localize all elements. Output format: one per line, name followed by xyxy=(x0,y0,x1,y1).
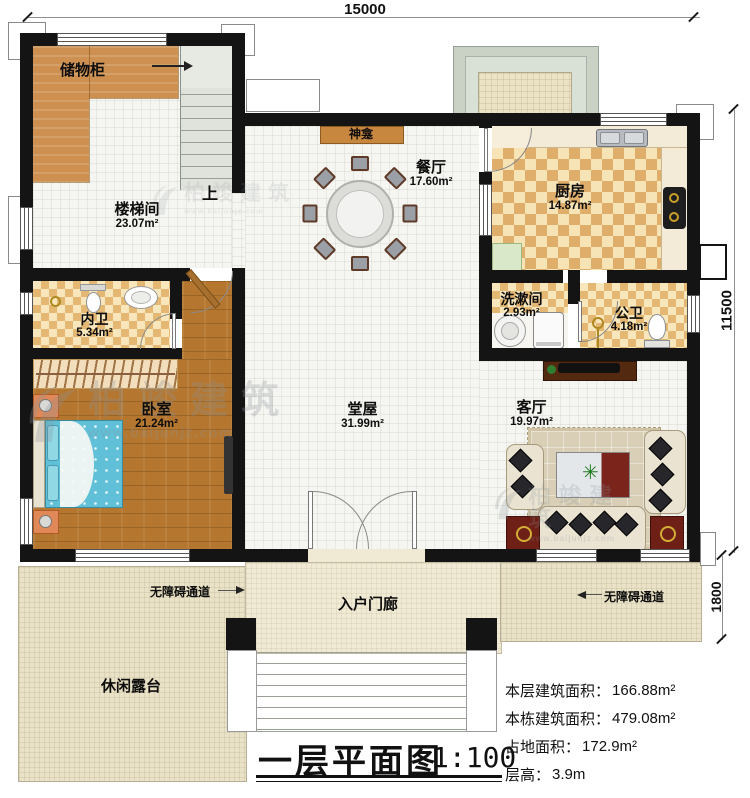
label-porch: 入户门廊 xyxy=(313,596,423,613)
wall-washroom-top-b xyxy=(607,270,700,283)
terrace-area xyxy=(18,566,247,782)
window-living-bottom-1 xyxy=(536,549,597,562)
label-public-bath: 公卫4.18m² xyxy=(594,305,664,334)
wall-top-mid xyxy=(232,113,600,126)
dim-right-label: 11500 xyxy=(719,281,736,341)
label-hall: 堂屋31.99m² xyxy=(320,401,405,431)
dim-porch-label: 1800 xyxy=(708,572,724,622)
label-bedroom: 卧室21.24m² xyxy=(114,401,199,431)
porch-column-base-right xyxy=(466,650,497,732)
private-toilet-bowl xyxy=(86,292,101,313)
stove-burner-1 xyxy=(669,193,679,203)
bedroom-tv xyxy=(224,436,233,494)
window-kitchen-top xyxy=(600,113,667,126)
wall-bath-bottom xyxy=(20,348,182,359)
label-kitchen: 厨房14.87m² xyxy=(530,183,610,213)
wall-bottom-4 xyxy=(597,549,640,562)
porch-column-left xyxy=(226,618,256,650)
porch-column-right xyxy=(466,618,497,650)
wall-bottom-5 xyxy=(690,549,700,562)
stair-opening-floor xyxy=(232,193,245,268)
wardrobe-rail xyxy=(36,373,175,375)
washing-machine-panel xyxy=(536,342,561,346)
window-bedroom-left xyxy=(20,498,33,545)
nightstand-lamp-bottom xyxy=(39,515,52,528)
porch-threshold xyxy=(308,549,425,562)
floor-plan: ✳ 储物柜 楼梯间23.07m² 神龛 餐厅17.60m² 厨房14.87m² … xyxy=(0,0,750,798)
stair-up-arrowhead xyxy=(184,61,193,71)
public-toilet-tank xyxy=(644,340,670,348)
window-stairwell-left xyxy=(20,207,33,250)
sill-dining-top xyxy=(246,79,320,112)
label-washroom: 洗漱间2.93m² xyxy=(479,291,564,320)
tv-plant xyxy=(547,365,556,374)
bay-structure-inner xyxy=(478,72,572,116)
label-terrace: 休闲露台 xyxy=(91,678,171,695)
porch-column-base-left xyxy=(227,650,257,732)
wall-bath-top xyxy=(20,268,190,281)
label-up: 上 xyxy=(202,180,218,204)
entry-door-leaf-right xyxy=(412,491,417,549)
accessible-right-arrow xyxy=(577,591,586,599)
wall-washroom-divider xyxy=(568,270,580,304)
dining-chair xyxy=(351,256,369,271)
title-underline-thin xyxy=(256,781,502,782)
private-toilet-tank xyxy=(80,284,106,291)
stat-height: 层高：3.9m xyxy=(505,760,675,788)
wall-hall-bedroom xyxy=(232,268,245,562)
dining-chair xyxy=(351,156,369,171)
kitchen-sink-bowl-left xyxy=(600,132,620,144)
label-dining: 餐厅17.60m² xyxy=(386,159,476,189)
window-bedroom-bottom xyxy=(75,549,190,562)
wall-washroom-bottom xyxy=(479,348,700,361)
wall-kitchen-a xyxy=(479,113,492,128)
label-stairwell: 楼梯间23.07m² xyxy=(92,201,182,231)
tv xyxy=(558,363,620,373)
wall-washroom-top-a xyxy=(479,270,563,283)
wall-bottom-3 xyxy=(425,549,536,562)
wall-bottom-1 xyxy=(20,549,75,562)
label-storage: 储物柜 xyxy=(40,62,125,79)
window-publicbath-right xyxy=(687,295,700,333)
end-table-right xyxy=(650,516,684,550)
bed-pillow-2 xyxy=(47,465,59,501)
bed-pillow-1 xyxy=(47,425,59,461)
coffee-table-plant: ✳ xyxy=(582,460,599,485)
label-shrine: 神龛 xyxy=(320,128,402,142)
label-private-bath: 内卫5.34m² xyxy=(57,311,132,340)
stove-burner-2 xyxy=(669,212,679,222)
wall-right-2 xyxy=(687,333,700,562)
public-bath-door-leaf xyxy=(578,301,582,342)
washroom-basin-inner xyxy=(501,322,519,340)
dining-table-inner xyxy=(336,190,384,238)
window-top-left xyxy=(57,33,167,46)
flue-box xyxy=(699,244,727,280)
label-living: 客厅19.97m² xyxy=(489,399,574,429)
label-accessible-right: 无障碍通道 xyxy=(604,588,664,605)
shower-drain xyxy=(50,296,61,307)
label-accessible-left: 无障碍通道 xyxy=(150,583,210,600)
pass-window-kitchen xyxy=(479,184,492,236)
kitchen-door-leaf xyxy=(484,128,488,172)
wall-bath-right xyxy=(170,268,182,319)
walkway-right xyxy=(500,562,702,642)
wall-top-left-a xyxy=(20,33,57,46)
accessible-left-arrow xyxy=(236,586,245,594)
stair-up-arrow xyxy=(152,65,186,67)
wall-bottom-2 xyxy=(190,549,308,562)
accessible-right-leader xyxy=(586,594,602,595)
plan-scale: 1:100 xyxy=(432,741,516,774)
window-living-bottom-2 xyxy=(640,549,690,562)
dining-chair xyxy=(403,205,418,223)
end-table-left xyxy=(506,516,540,550)
kitchen-sink-bowl-right xyxy=(624,132,644,144)
dim-top-label: 15000 xyxy=(330,1,400,18)
title-underline-thick xyxy=(256,775,502,778)
stat-total-area: 本栋建筑面积：479.08m² xyxy=(505,704,675,732)
entry-steps xyxy=(256,652,468,732)
window-bath-left xyxy=(20,292,33,315)
stat-floor-area: 本层建筑面积：166.88m² xyxy=(505,676,675,704)
sill-bottom-right xyxy=(700,532,716,566)
wall-kitchen-b xyxy=(479,172,492,184)
dining-chair xyxy=(303,205,318,223)
bed-headboard xyxy=(33,420,45,508)
stat-footprint: 占地面积：172.9m² xyxy=(505,732,675,760)
entry-door-leaf-left xyxy=(308,491,313,549)
wall-left-1 xyxy=(20,33,33,207)
accessible-left-leader xyxy=(218,590,236,591)
nightstand-lamp-top xyxy=(39,399,52,412)
stats-block: 本层建筑面积：166.88m² 本栋建筑面积：479.08m² 占地面积：172… xyxy=(505,676,675,788)
kitchen-appliance xyxy=(492,243,522,271)
private-bath-door-leaf xyxy=(172,313,176,349)
wall-left-3 xyxy=(20,315,33,498)
private-basin-inner xyxy=(131,291,151,304)
